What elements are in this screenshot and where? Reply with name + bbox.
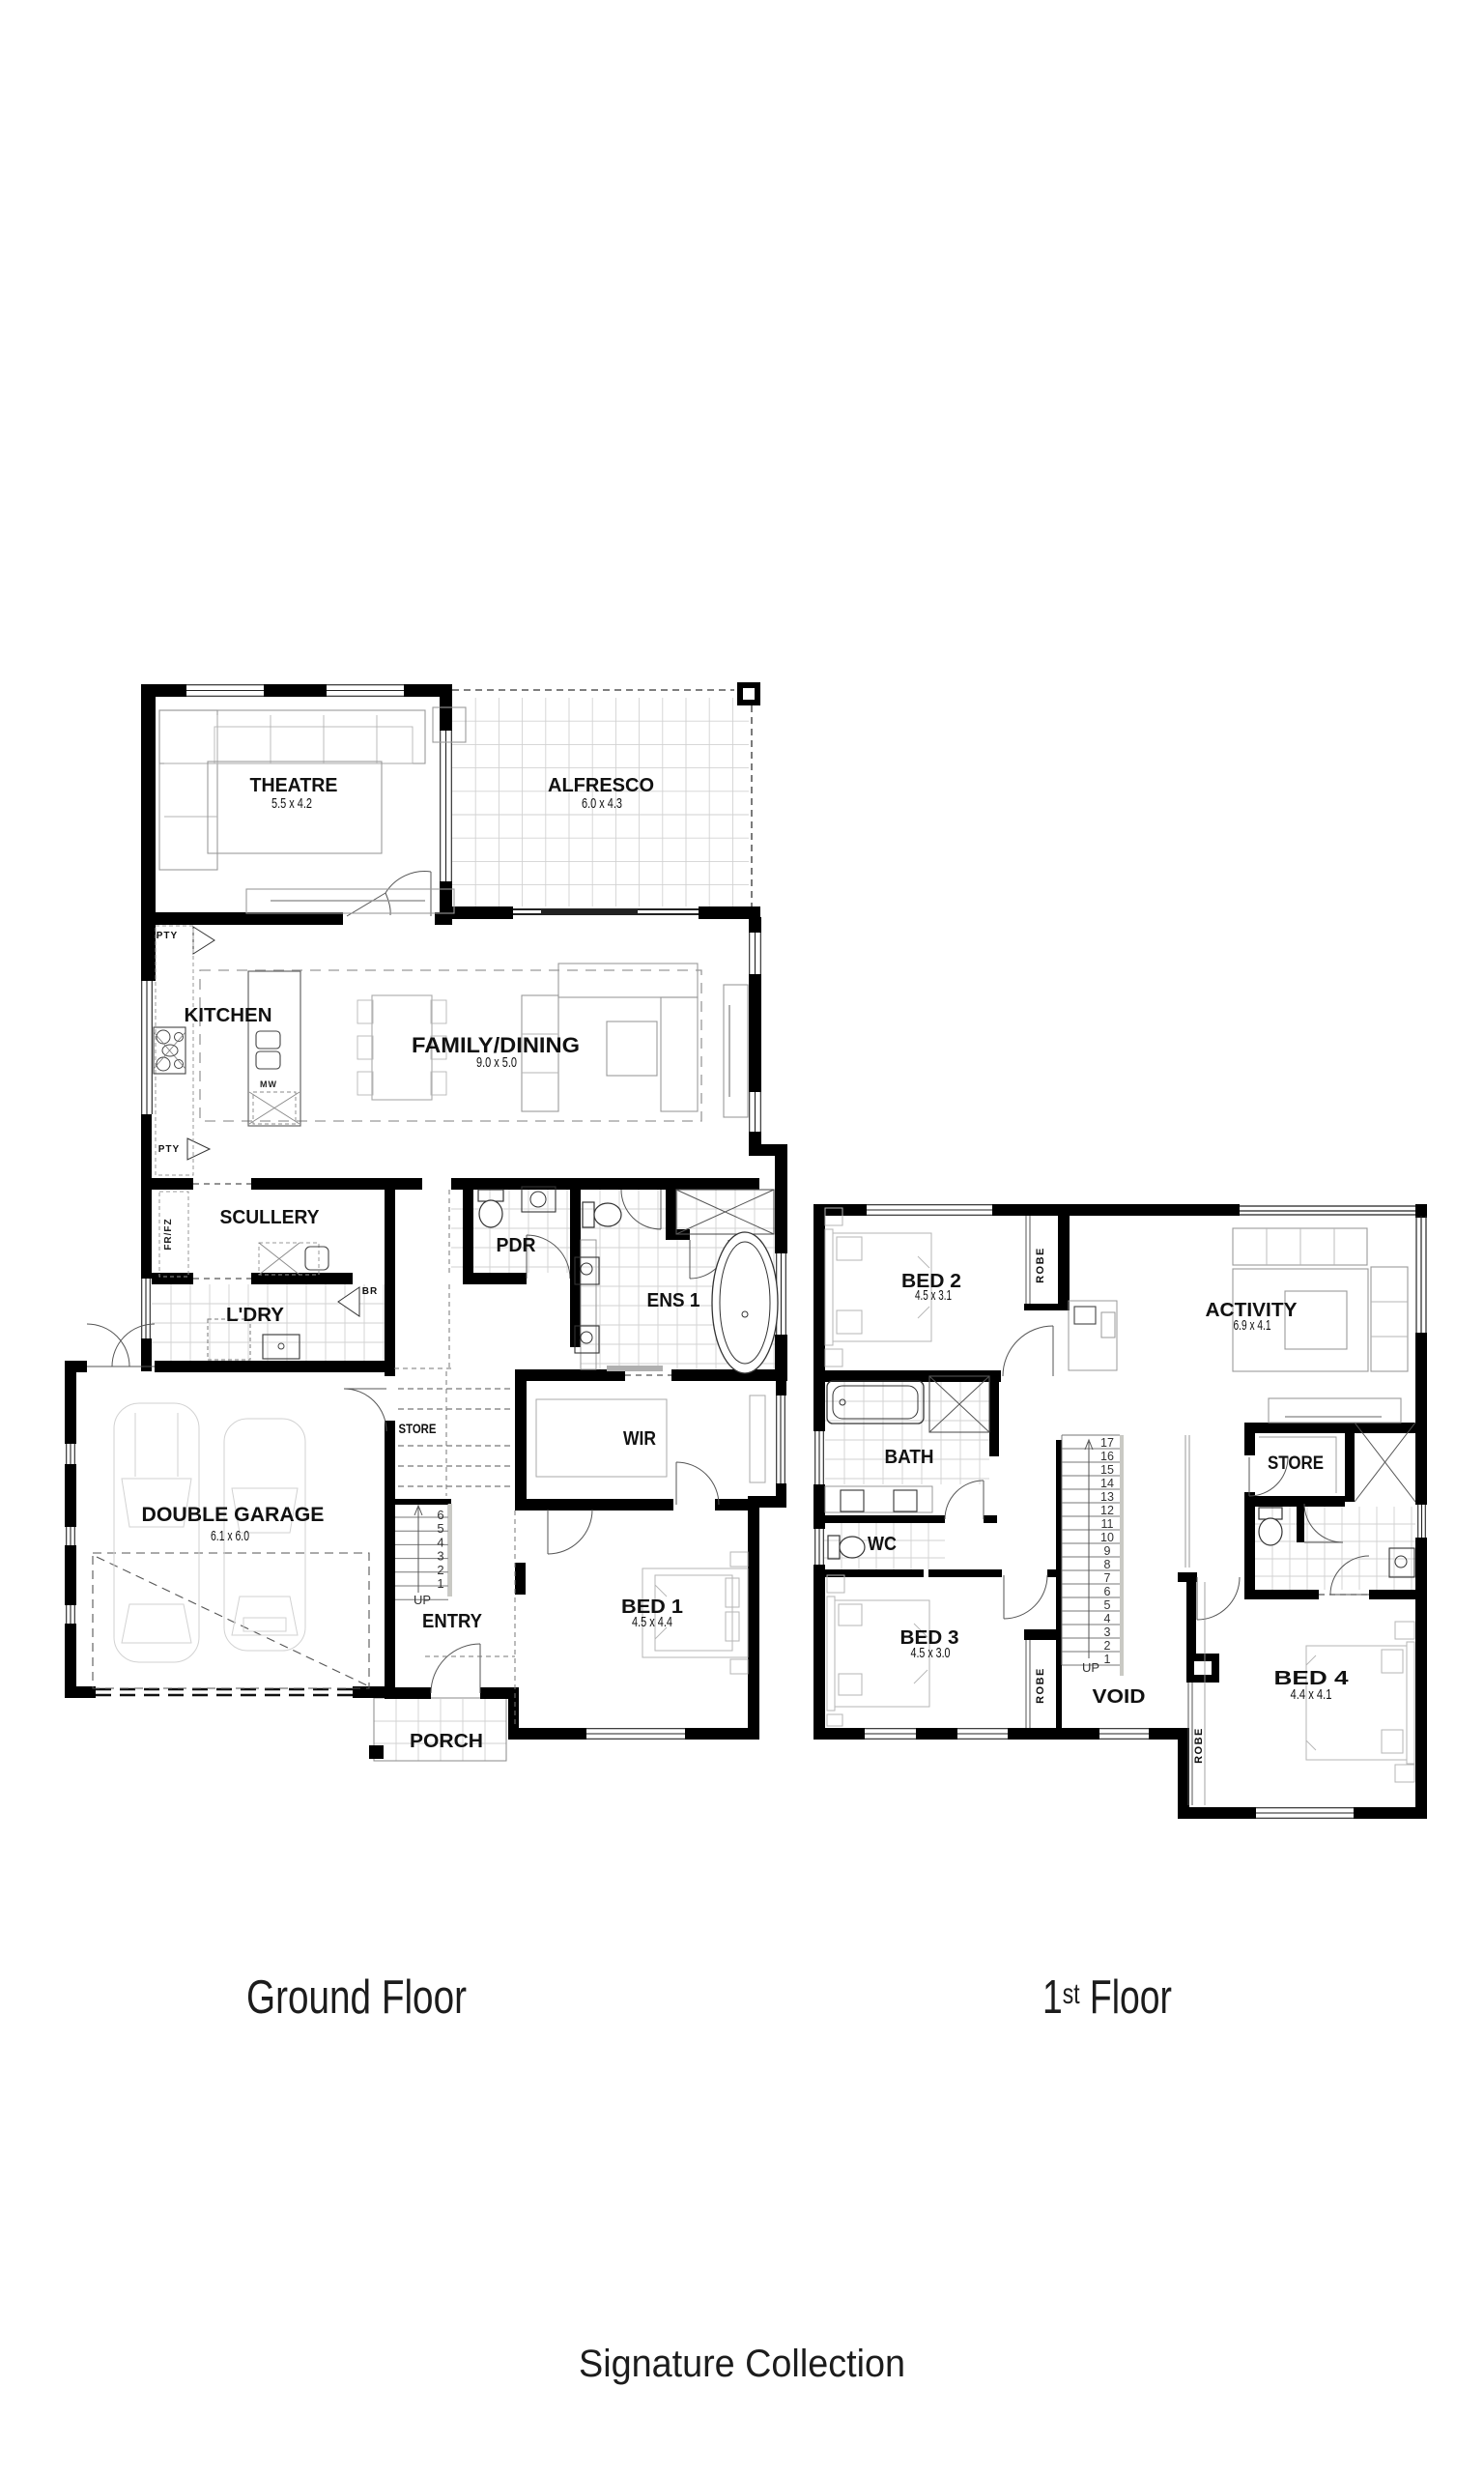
svg-text:STORE: STORE bbox=[1268, 1453, 1324, 1474]
svg-text:14: 14 bbox=[1100, 1477, 1114, 1490]
svg-text:6.1 x 6.0: 6.1 x 6.0 bbox=[211, 1528, 249, 1544]
svg-text:4.4 x 4.1: 4.4 x 4.1 bbox=[1291, 1686, 1332, 1703]
svg-text:DOUBLE GARAGE: DOUBLE GARAGE bbox=[142, 1504, 325, 1526]
svg-text:3: 3 bbox=[1104, 1625, 1111, 1639]
svg-text:WIR: WIR bbox=[623, 1428, 656, 1450]
svg-text:4: 4 bbox=[1104, 1612, 1111, 1625]
svg-text:PDR: PDR bbox=[497, 1235, 537, 1256]
svg-text:1: 1 bbox=[1104, 1653, 1111, 1666]
svg-text:UP: UP bbox=[1082, 1660, 1099, 1675]
svg-text:7: 7 bbox=[1104, 1571, 1111, 1585]
svg-text:9: 9 bbox=[1104, 1544, 1111, 1558]
svg-text:4.5 x 3.1: 4.5 x 3.1 bbox=[915, 1287, 952, 1304]
svg-text:6: 6 bbox=[437, 1508, 443, 1522]
svg-text:2: 2 bbox=[1104, 1639, 1111, 1653]
svg-text:12: 12 bbox=[1100, 1504, 1114, 1517]
svg-text:4: 4 bbox=[437, 1535, 443, 1549]
svg-text:5: 5 bbox=[437, 1521, 443, 1536]
svg-text:ROBE: ROBE bbox=[1035, 1247, 1046, 1283]
svg-text:17: 17 bbox=[1100, 1436, 1114, 1450]
svg-text:ENTRY: ENTRY bbox=[422, 1611, 483, 1632]
svg-text:3: 3 bbox=[437, 1549, 443, 1564]
svg-text:11: 11 bbox=[1101, 1517, 1114, 1531]
svg-text:PTY: PTY bbox=[158, 1144, 180, 1155]
svg-text:6.0 x 4.3: 6.0 x 4.3 bbox=[582, 795, 622, 812]
svg-text:6: 6 bbox=[1104, 1585, 1111, 1598]
svg-text:PORCH: PORCH bbox=[410, 1731, 483, 1752]
svg-text:Ground Floor: Ground Floor bbox=[246, 1971, 467, 2024]
svg-text:8: 8 bbox=[1104, 1558, 1111, 1571]
svg-text:Signature Collection: Signature Collection bbox=[579, 2343, 905, 2385]
svg-text:WC: WC bbox=[868, 1534, 897, 1555]
svg-text:1st Floor: 1st Floor bbox=[1042, 1971, 1172, 2024]
svg-text:BR: BR bbox=[362, 1286, 378, 1297]
svg-text:FR/FZ: FR/FZ bbox=[163, 1218, 174, 1250]
svg-text:13: 13 bbox=[1100, 1490, 1114, 1504]
svg-text:2: 2 bbox=[437, 1563, 443, 1577]
svg-text:4.5 x 4.4: 4.5 x 4.4 bbox=[632, 1614, 672, 1630]
svg-text:ROBE: ROBE bbox=[1193, 1727, 1205, 1764]
svg-text:5.5 x 4.2: 5.5 x 4.2 bbox=[271, 795, 312, 812]
svg-text:UP: UP bbox=[414, 1593, 431, 1607]
svg-text:10: 10 bbox=[1100, 1531, 1114, 1544]
svg-text:1: 1 bbox=[437, 1576, 443, 1591]
svg-text:KITCHEN: KITCHEN bbox=[185, 1005, 272, 1026]
svg-text:PTY: PTY bbox=[157, 931, 178, 941]
svg-text:ALFRESCO: ALFRESCO bbox=[548, 775, 654, 796]
svg-text:STORE: STORE bbox=[399, 1421, 437, 1436]
svg-text:MW: MW bbox=[260, 1079, 277, 1089]
svg-text:ROBE: ROBE bbox=[1035, 1667, 1046, 1704]
svg-text:5: 5 bbox=[1104, 1598, 1111, 1612]
svg-text:6.9 x 4.1: 6.9 x 4.1 bbox=[1234, 1317, 1271, 1334]
svg-text:ENS 1: ENS 1 bbox=[647, 1290, 700, 1311]
svg-text:L'DRY: L'DRY bbox=[226, 1305, 285, 1326]
svg-text:VOID: VOID bbox=[1093, 1686, 1146, 1708]
svg-text:15: 15 bbox=[1100, 1463, 1114, 1477]
svg-text:THEATRE: THEATRE bbox=[250, 775, 338, 796]
svg-text:9.0 x 5.0: 9.0 x 5.0 bbox=[476, 1054, 517, 1071]
svg-text:BATH: BATH bbox=[885, 1447, 934, 1468]
svg-text:16: 16 bbox=[1100, 1450, 1114, 1463]
svg-text:4.5 x 3.0: 4.5 x 3.0 bbox=[911, 1645, 951, 1661]
svg-text:SCULLERY: SCULLERY bbox=[220, 1207, 321, 1228]
